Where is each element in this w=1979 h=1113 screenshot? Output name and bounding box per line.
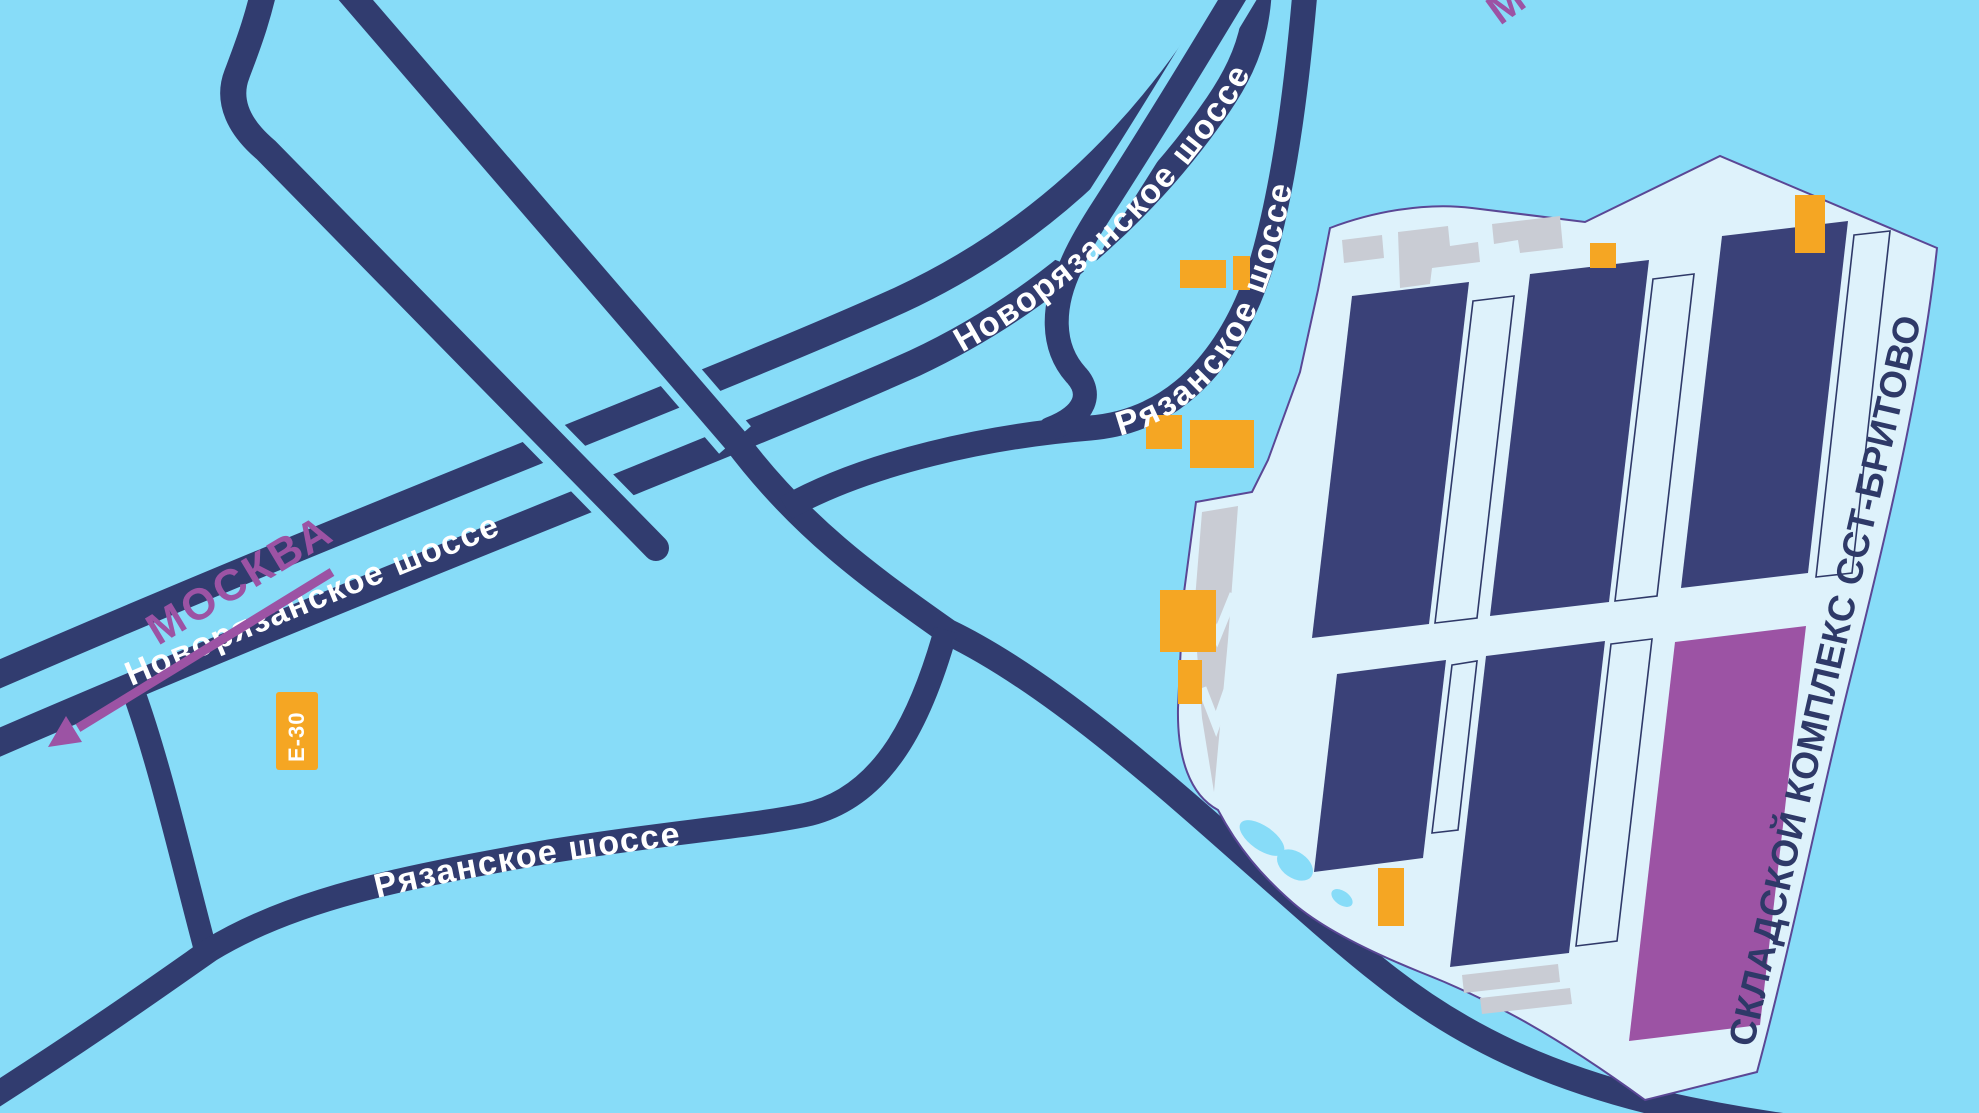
orange-building-5	[1160, 590, 1216, 652]
orange-building-6	[1178, 660, 1202, 704]
orange-building-7	[1590, 243, 1616, 268]
route-map: Новорязанское шоссе Новорязанское шоссе …	[0, 0, 1979, 1113]
orange-building-8	[1795, 195, 1825, 253]
orange-building-9	[1378, 868, 1404, 926]
route-badge-e30: Е-30	[276, 692, 318, 770]
orange-building-4	[1190, 420, 1254, 468]
orange-building-1	[1180, 260, 1226, 288]
map-canvas: Новорязанское шоссе Новорязанское шоссе …	[0, 0, 1979, 1113]
route-badge-label: Е-30	[284, 712, 309, 762]
